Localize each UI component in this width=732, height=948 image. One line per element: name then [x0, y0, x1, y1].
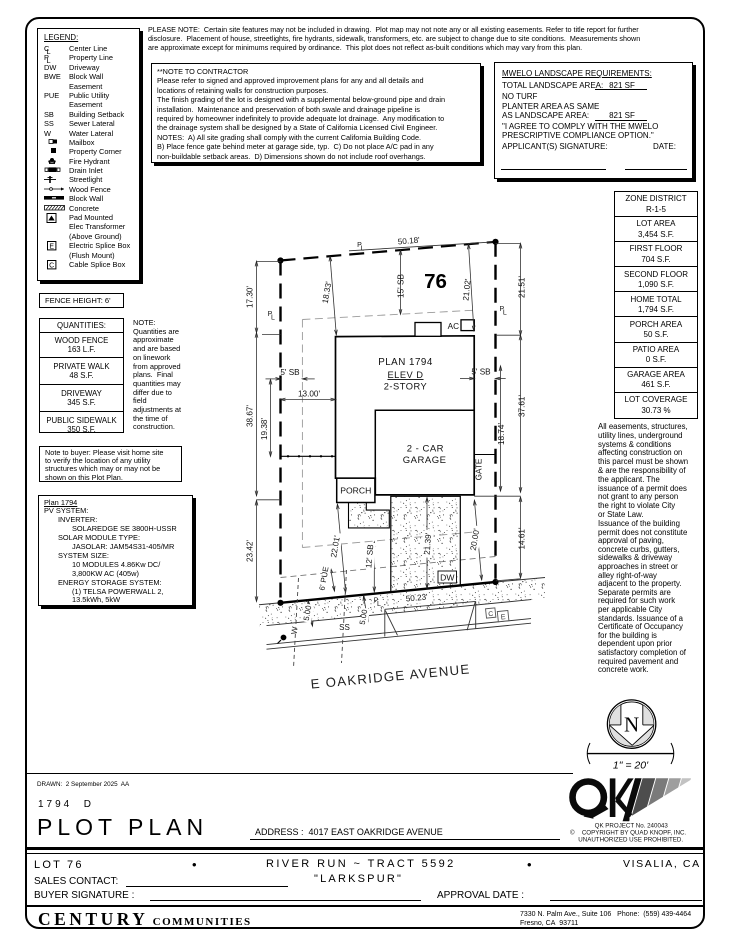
- svg-text:21.02': 21.02': [461, 278, 472, 301]
- svg-text:PLAN 1794: PLAN 1794: [378, 357, 433, 368]
- svg-text:QK PROJECT No. 240043: QK PROJECT No. 240043: [595, 822, 669, 829]
- svg-text:COPYRIGHT BY QUAD KNOPF, INC.: COPYRIGHT BY QUAD KNOPF, INC.: [582, 829, 687, 836]
- svg-text:2-STORY: 2-STORY: [384, 382, 427, 392]
- svg-text:L: L: [503, 310, 507, 317]
- svg-text:21.39': 21.39': [423, 532, 434, 555]
- svg-text:23.42': 23.42': [246, 540, 255, 562]
- svg-text:N: N: [624, 713, 639, 737]
- svg-text:50.18': 50.18': [397, 236, 420, 247]
- svg-text:5' SB: 5' SB: [471, 368, 491, 377]
- svg-text:18.33': 18.33': [321, 281, 334, 305]
- svg-text:19.38': 19.38': [260, 418, 269, 440]
- svg-text:C: C: [488, 611, 494, 618]
- svg-text:38.67': 38.67': [246, 405, 255, 427]
- svg-text:L: L: [271, 315, 275, 322]
- svg-text:C: C: [49, 262, 54, 269]
- svg-text:6' PUE: 6' PUE: [318, 566, 331, 591]
- svg-text:L: L: [361, 246, 365, 253]
- svg-text:AC: AC: [448, 322, 459, 331]
- svg-text:E OAKRIDGE AVENUE: E OAKRIDGE AVENUE: [310, 661, 471, 691]
- svg-text:22.01': 22.01': [329, 535, 342, 559]
- svg-text:GARAGE: GARAGE: [403, 455, 447, 466]
- svg-text:37.61': 37.61': [517, 395, 526, 417]
- svg-text:2 - CAR: 2 - CAR: [407, 444, 444, 455]
- svg-text:DW: DW: [440, 573, 455, 583]
- svg-text:SS: SS: [339, 623, 350, 632]
- svg-text:©: ©: [570, 829, 575, 836]
- svg-text:PORCH: PORCH: [340, 486, 371, 496]
- svg-text:UNAUTHORIZED USE PROHIBITED.: UNAUTHORIZED USE PROHIBITED.: [578, 836, 683, 843]
- svg-text:ELEV D: ELEV D: [387, 370, 423, 380]
- svg-text:E: E: [49, 244, 54, 251]
- svg-text:76: 76: [424, 270, 447, 293]
- svg-text:GATE: GATE: [475, 458, 484, 480]
- svg-text:21.51': 21.51': [517, 276, 526, 298]
- svg-text:20.00': 20.00': [469, 528, 482, 552]
- svg-text:L: L: [377, 601, 381, 608]
- svg-text:17.30': 17.30': [246, 286, 255, 308]
- svg-text:14.61': 14.61': [517, 527, 526, 549]
- svg-text:18.74': 18.74': [497, 423, 506, 445]
- svg-text:15' SB: 15' SB: [397, 274, 406, 298]
- svg-text:W: W: [289, 626, 299, 635]
- svg-text:5' SB: 5' SB: [280, 368, 300, 377]
- svg-text:13.00': 13.00': [298, 390, 320, 399]
